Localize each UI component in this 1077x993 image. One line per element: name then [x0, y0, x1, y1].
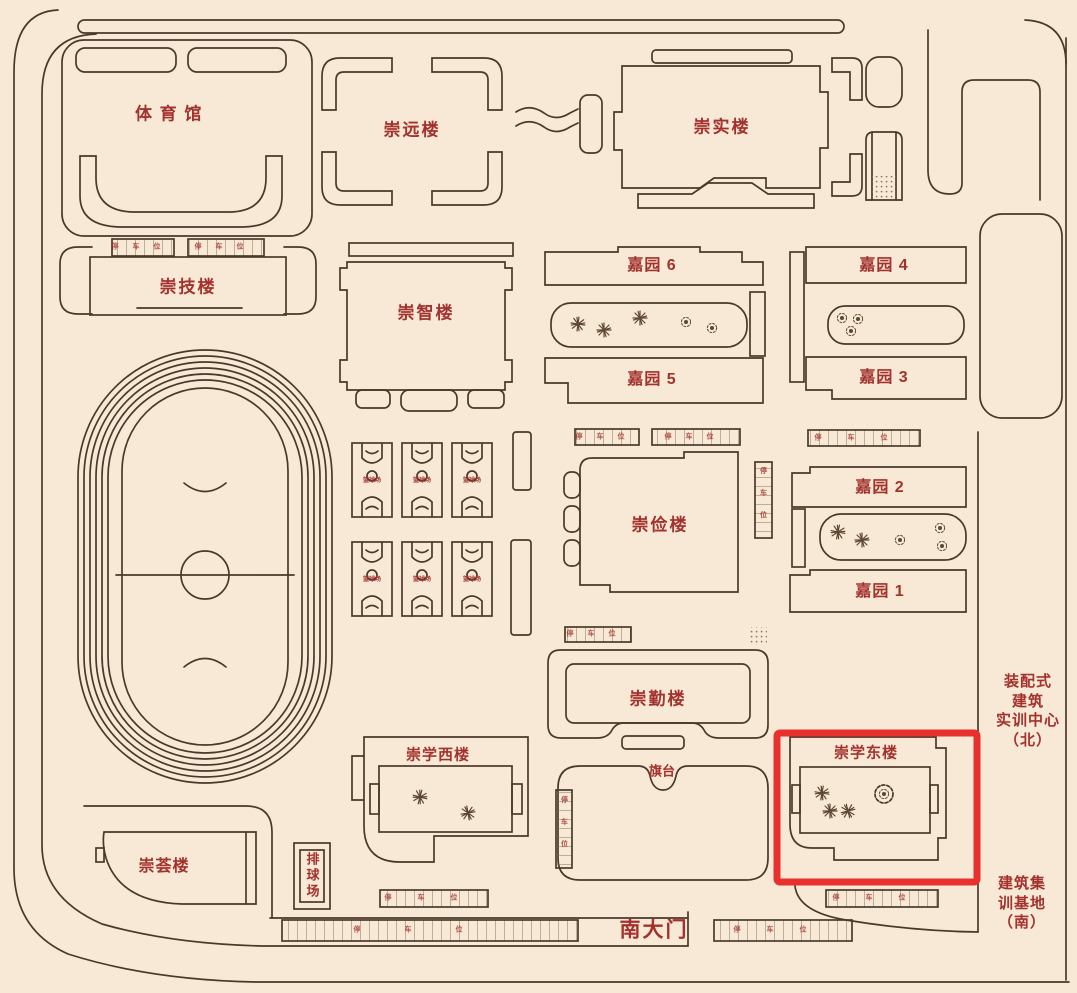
parking-label: 停车位 [734, 927, 833, 934]
label-line: 实训中心 [996, 711, 1060, 731]
basketball-court-label: 篮球场 [463, 478, 481, 484]
building-label-chongzhi: 崇智楼 [398, 305, 455, 322]
basketball-court-label: 篮球场 [413, 478, 431, 484]
parking-label: 停车位 [354, 927, 507, 934]
building-label-chongxue-west: 崇学西楼 [406, 748, 470, 763]
parking-label: 停车位 [561, 796, 568, 862]
label-line: 建筑 [996, 692, 1060, 712]
chongzhi-outline [340, 243, 513, 411]
campus-map-drawing [0, 0, 1077, 993]
basketball-court-label: 篮球场 [363, 577, 381, 583]
label-line: 装配式 [996, 672, 1060, 692]
label-line: 训基地 [998, 894, 1046, 914]
building-label-chongji: 崇技楼 [160, 279, 217, 296]
building-label-jiayuan4: 嘉园 4 [859, 258, 908, 274]
label-line: （南） [998, 913, 1046, 933]
parking-label: 停车位 [760, 467, 767, 533]
gymnasium-outline [62, 40, 312, 236]
flag-platform-label: 旗台 [649, 765, 675, 778]
stream-path [516, 95, 602, 153]
label-line: 建筑集 [998, 874, 1046, 894]
south-gate-label: 南大门 [620, 920, 689, 941]
volleyball-court-label: 排球场 [306, 852, 319, 900]
building-label-chongxue-east: 崇学东楼 [834, 746, 898, 761]
building-label-chongyuan: 崇远楼 [384, 122, 441, 139]
training-center-north-label: 装配式 建筑 实训中心 （北） [996, 672, 1060, 750]
building-label-gymnasium: 体育馆 [135, 106, 209, 123]
parking-label: 停车位 [576, 434, 639, 441]
training-base-south-label: 建筑集 训基地 （南） [998, 874, 1046, 933]
parking-label: 停车位 [815, 435, 914, 442]
building-label-jiayuan2: 嘉园 2 [855, 480, 904, 496]
chongqin-outline [548, 627, 768, 749]
basketball-court-label: 篮球场 [363, 478, 381, 484]
parking-label: 停车位 [385, 895, 484, 902]
parking-label: 停车位 [112, 244, 175, 251]
running-track [78, 350, 332, 783]
perimeter-roads [14, 10, 1069, 982]
basketball-court-label: 篮球场 [413, 577, 431, 583]
flag-platform-outline [558, 766, 768, 880]
campus-map: 体育馆 崇远楼 崇实楼 崇技楼 崇智楼 嘉园 6 嘉园 5 嘉园 4 嘉园 3 … [0, 0, 1077, 993]
north-gate-booths [866, 57, 902, 200]
building-label-jiayuan1: 嘉园 1 [855, 584, 904, 600]
parking-label: 停车位 [665, 434, 728, 441]
parking-label: 停车位 [833, 895, 932, 902]
parking-label: 停车位 [195, 244, 258, 251]
basketball-court-label: 篮球场 [463, 577, 481, 583]
building-label-chonghui: 崇荟楼 [138, 859, 189, 875]
building-label-chongshi: 崇实楼 [694, 119, 751, 136]
building-label-jiayuan3: 嘉园 3 [859, 370, 908, 386]
building-label-chongjian: 崇俭楼 [632, 517, 689, 534]
basketball-courts [352, 432, 531, 635]
parking-label: 停车位 [567, 631, 630, 638]
label-line: （北） [996, 731, 1060, 751]
building-label-jiayuan6: 嘉园 6 [627, 258, 676, 274]
building-label-chongqin: 崇勤楼 [630, 691, 687, 708]
building-label-jiayuan5: 嘉园 5 [627, 372, 676, 388]
